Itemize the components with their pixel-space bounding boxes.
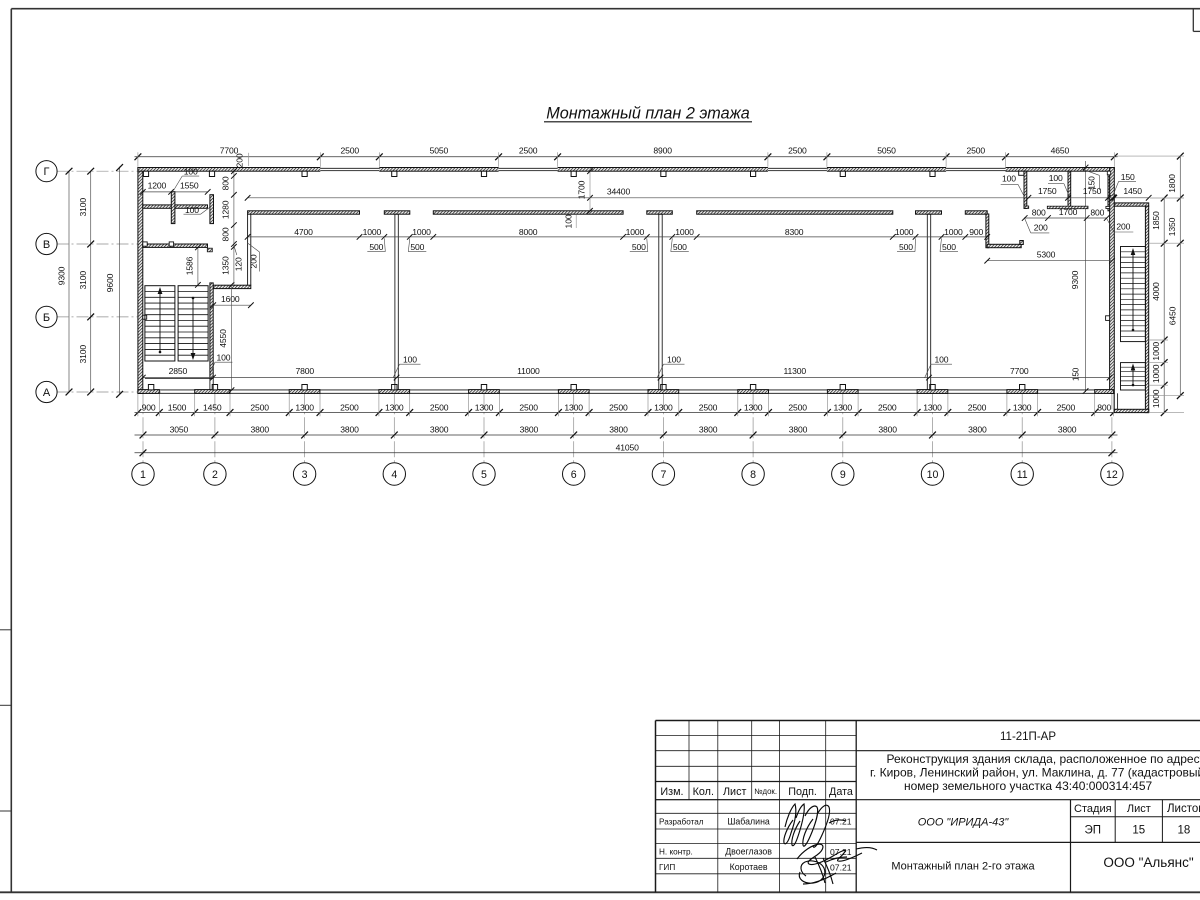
svg-text:41050: 41050 [616, 442, 640, 452]
svg-text:2500: 2500 [519, 146, 538, 156]
svg-text:1800: 1800 [1167, 174, 1177, 193]
svg-text:4700: 4700 [294, 227, 313, 237]
svg-text:2500: 2500 [519, 402, 538, 412]
svg-text:5: 5 [481, 469, 487, 481]
svg-text:1450: 1450 [203, 402, 222, 412]
svg-text:6: 6 [571, 469, 577, 481]
svg-text:г. Киров, Ленинский район, ул.: г. Киров, Ленинский район, ул. Маклина, … [870, 765, 1200, 779]
svg-text:18: 18 [1178, 824, 1191, 836]
svg-text:ГИП: ГИП [659, 863, 675, 872]
svg-text:ООО "Альянс": ООО "Альянс" [1103, 855, 1193, 870]
svg-text:100: 100 [667, 354, 681, 364]
svg-text:100: 100 [1002, 174, 1016, 184]
svg-text:5050: 5050 [877, 146, 896, 156]
svg-text:1700: 1700 [577, 180, 587, 199]
svg-text:1300: 1300 [654, 402, 673, 412]
svg-text:10: 10 [927, 469, 939, 481]
svg-text:Коротаев: Коротаев [730, 862, 768, 872]
svg-text:Монтажный план 2 этажа: Монтажный план 2 этажа [546, 105, 750, 123]
svg-text:07.21: 07.21 [830, 862, 852, 872]
svg-text:Шабалина: Шабалина [727, 817, 770, 827]
svg-text:7800: 7800 [296, 366, 315, 376]
svg-text:Лист: Лист [723, 786, 747, 798]
svg-text:100: 100 [184, 167, 198, 177]
svg-text:9: 9 [840, 469, 846, 481]
svg-text:1350: 1350 [1167, 217, 1177, 236]
svg-text:150: 150 [1088, 176, 1097, 190]
svg-text:3800: 3800 [699, 424, 718, 434]
svg-text:11300: 11300 [784, 366, 807, 376]
svg-text:№док.: №док. [754, 787, 777, 796]
svg-text:11: 11 [1017, 469, 1028, 481]
svg-text:150: 150 [1121, 172, 1135, 182]
svg-text:3100: 3100 [78, 345, 88, 364]
svg-text:Двоеглазов: Двоеглазов [725, 846, 772, 856]
svg-text:1000: 1000 [1151, 389, 1161, 408]
svg-text:1200: 1200 [148, 181, 167, 191]
svg-text:3100: 3100 [78, 198, 88, 217]
svg-text:8900: 8900 [653, 146, 672, 156]
svg-text:1700: 1700 [1059, 207, 1078, 217]
svg-text:3800: 3800 [340, 424, 359, 434]
svg-text:3800: 3800 [878, 424, 897, 434]
svg-text:3800: 3800 [789, 424, 808, 434]
svg-text:1600: 1600 [221, 294, 240, 304]
svg-text:ООО "ИРИДА-43": ООО "ИРИДА-43" [918, 817, 1010, 829]
svg-text:200: 200 [1116, 222, 1130, 232]
svg-text:2500: 2500 [430, 402, 449, 412]
svg-text:100: 100 [185, 205, 199, 215]
svg-text:500: 500 [410, 242, 424, 252]
svg-text:11-21П-АР: 11-21П-АР [1000, 731, 1056, 743]
svg-text:1000: 1000 [944, 227, 963, 237]
svg-text:1450: 1450 [1123, 186, 1142, 196]
svg-text:3050: 3050 [170, 424, 189, 434]
svg-text:1300: 1300 [475, 402, 494, 412]
svg-text:500: 500 [899, 242, 913, 252]
svg-text:Монтажный план 2-го этажа: Монтажный план 2-го этажа [891, 861, 1035, 873]
svg-text:3800: 3800 [520, 424, 539, 434]
svg-text:34400: 34400 [607, 186, 631, 196]
svg-text:Стадия: Стадия [1074, 803, 1112, 815]
svg-text:500: 500 [942, 242, 956, 252]
svg-text:2500: 2500 [788, 146, 807, 156]
svg-text:Изм.: Изм. [660, 786, 683, 798]
svg-text:2: 2 [212, 469, 218, 481]
svg-text:1000: 1000 [675, 227, 694, 237]
svg-text:100: 100 [1049, 173, 1063, 183]
svg-text:номер земельного участка 43:40: номер земельного участка 43:40:000314:45… [904, 779, 1153, 793]
svg-text:1000: 1000 [412, 227, 431, 237]
svg-text:1500: 1500 [168, 402, 187, 412]
svg-text:9300: 9300 [56, 266, 66, 285]
svg-text:5300: 5300 [1037, 249, 1056, 259]
svg-text:2500: 2500 [788, 402, 807, 412]
svg-text:1550: 1550 [180, 181, 199, 191]
svg-text:3100: 3100 [78, 271, 88, 290]
svg-text:7: 7 [660, 469, 666, 481]
svg-text:2500: 2500 [878, 402, 897, 412]
svg-text:1750: 1750 [1038, 186, 1057, 196]
svg-text:4550: 4550 [218, 329, 228, 348]
svg-text:100: 100 [216, 353, 230, 363]
svg-text:1000: 1000 [626, 227, 645, 237]
svg-text:Лист: Лист [1127, 803, 1151, 815]
svg-text:11000: 11000 [517, 366, 540, 376]
svg-text:2850: 2850 [169, 366, 188, 376]
svg-text:Н. контр.: Н. контр. [659, 847, 693, 856]
svg-text:15: 15 [1132, 824, 1145, 836]
svg-text:3: 3 [302, 469, 308, 481]
svg-text:8000: 8000 [519, 227, 538, 237]
svg-text:1280: 1280 [220, 200, 230, 219]
svg-text:2500: 2500 [699, 402, 718, 412]
svg-text:2500: 2500 [1057, 402, 1076, 412]
svg-text:Дата: Дата [829, 786, 853, 798]
svg-text:200: 200 [1034, 223, 1048, 233]
svg-text:1000: 1000 [1151, 364, 1161, 383]
svg-text:5050: 5050 [430, 146, 449, 156]
svg-text:3800: 3800 [1058, 424, 1077, 434]
svg-text:9300: 9300 [1070, 270, 1080, 289]
svg-text:Г: Г [44, 166, 50, 178]
svg-text:800: 800 [1097, 402, 1111, 412]
svg-text:1000: 1000 [1151, 342, 1161, 361]
svg-text:900: 900 [142, 402, 156, 412]
svg-text:1000: 1000 [895, 227, 914, 237]
svg-text:8300: 8300 [785, 227, 804, 237]
svg-text:800: 800 [220, 227, 230, 241]
svg-text:1300: 1300 [744, 402, 763, 412]
svg-text:Разработал: Разработал [659, 818, 704, 827]
svg-text:800: 800 [1032, 208, 1046, 218]
svg-text:100: 100 [935, 354, 949, 364]
svg-text:4: 4 [391, 469, 397, 481]
svg-text:800: 800 [220, 176, 230, 190]
svg-text:Кол.: Кол. [693, 786, 714, 798]
svg-text:2500: 2500 [340, 402, 359, 412]
svg-text:2500: 2500 [250, 402, 269, 412]
svg-text:8: 8 [750, 469, 756, 481]
svg-text:500: 500 [632, 242, 646, 252]
svg-text:2500: 2500 [968, 402, 987, 412]
svg-text:3800: 3800 [251, 424, 270, 434]
svg-text:Листов: Листов [1167, 803, 1200, 815]
svg-text:500: 500 [673, 242, 687, 252]
svg-text:1: 1 [140, 469, 146, 481]
svg-text:Реконструкция здания склада, р: Реконструкция здания склада, расположенн… [887, 752, 1200, 766]
svg-text:7700: 7700 [1010, 366, 1029, 376]
svg-text:1850: 1850 [1151, 211, 1161, 230]
svg-text:Подп.: Подп. [788, 786, 817, 798]
svg-text:1300: 1300 [295, 402, 314, 412]
svg-text:1300: 1300 [834, 402, 853, 412]
svg-text:3800: 3800 [968, 424, 987, 434]
svg-text:1300: 1300 [1013, 402, 1032, 412]
svg-text:900: 900 [969, 227, 983, 237]
svg-text:1586: 1586 [184, 256, 194, 275]
svg-text:120: 120 [233, 257, 243, 271]
svg-text:Б: Б [43, 312, 50, 324]
svg-text:2500: 2500 [967, 146, 986, 156]
svg-text:800: 800 [1090, 208, 1104, 218]
svg-text:6450: 6450 [1168, 306, 1178, 325]
svg-text:1300: 1300 [385, 402, 404, 412]
svg-text:200: 200 [234, 153, 244, 167]
svg-text:9600: 9600 [105, 273, 115, 292]
svg-text:100: 100 [403, 354, 417, 364]
svg-text:1000: 1000 [363, 227, 382, 237]
svg-text:12: 12 [1106, 469, 1118, 481]
svg-text:3800: 3800 [609, 424, 628, 434]
svg-text:2500: 2500 [609, 402, 628, 412]
svg-text:3800: 3800 [430, 424, 449, 434]
svg-text:500: 500 [369, 242, 383, 252]
svg-text:В: В [43, 239, 50, 251]
svg-text:А: А [43, 387, 51, 399]
svg-text:150: 150 [1072, 367, 1081, 381]
svg-text:1300: 1300 [923, 402, 942, 412]
svg-text:1300: 1300 [564, 402, 583, 412]
svg-text:200: 200 [248, 254, 258, 268]
svg-text:4000: 4000 [1151, 282, 1161, 301]
svg-text:2500: 2500 [341, 146, 360, 156]
svg-text:1350: 1350 [220, 256, 230, 275]
svg-text:ЭП: ЭП [1085, 824, 1102, 836]
svg-text:100: 100 [563, 214, 573, 228]
svg-text:4650: 4650 [1051, 146, 1070, 156]
